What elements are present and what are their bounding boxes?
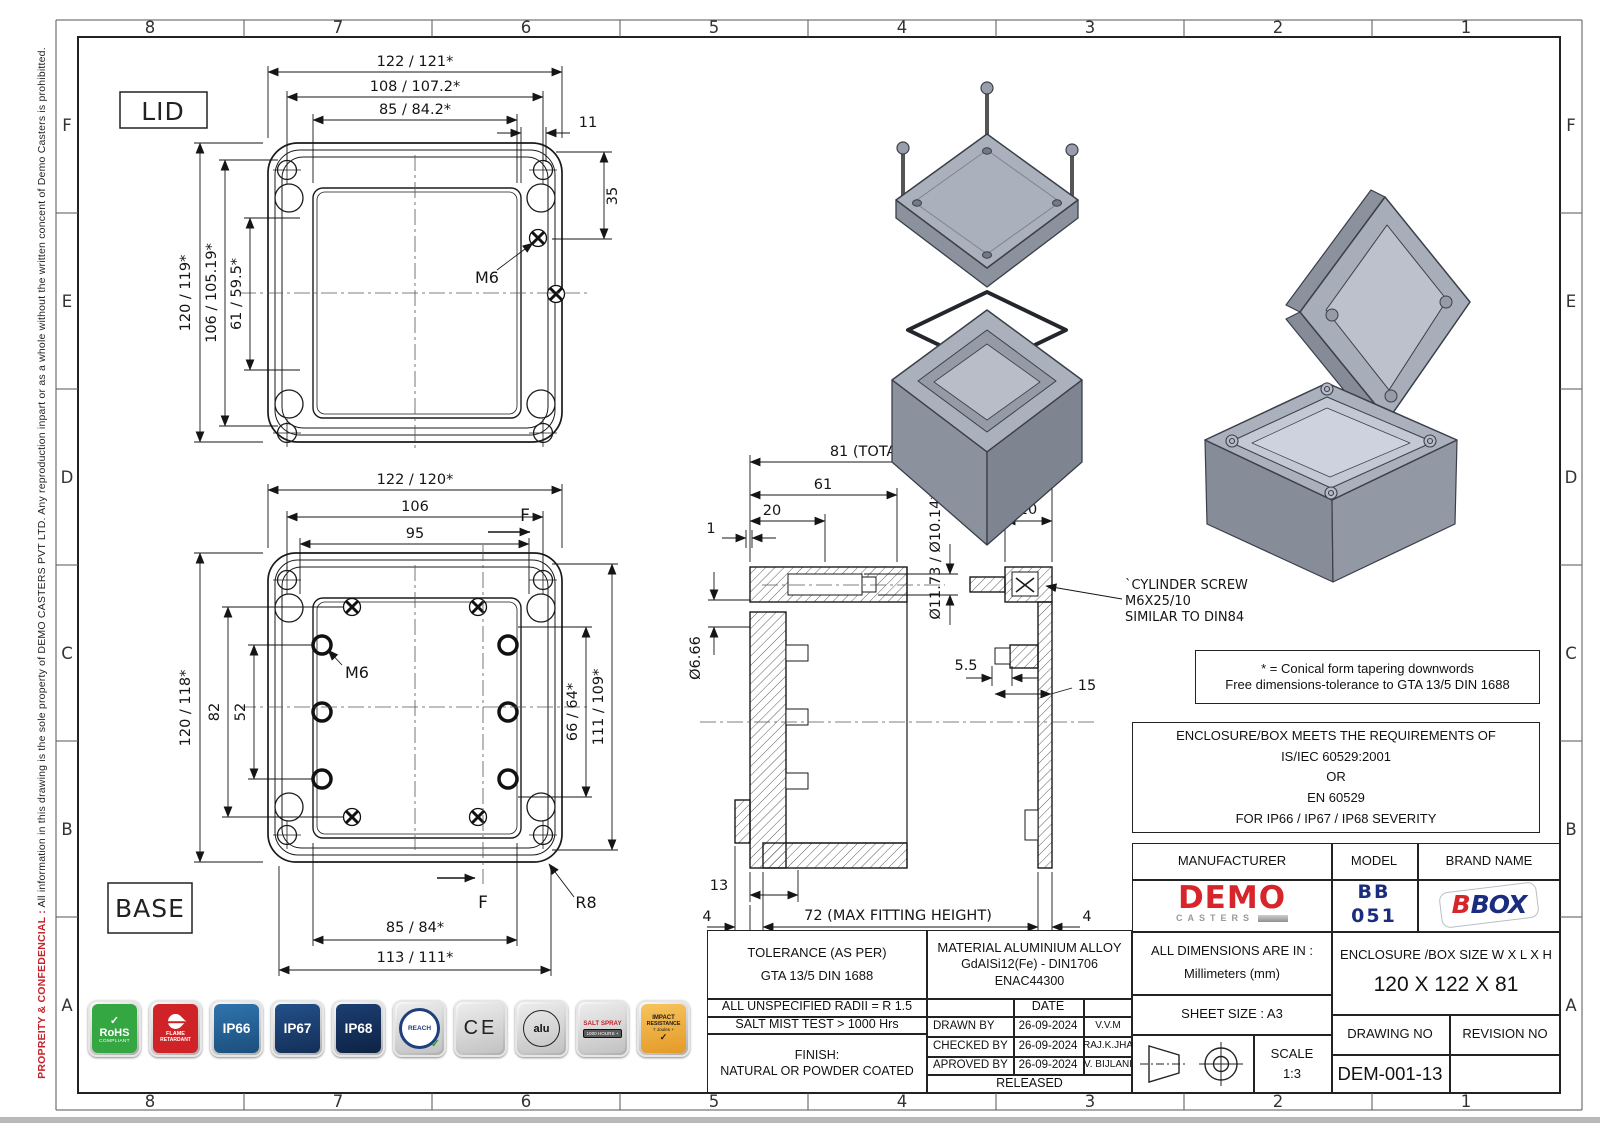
requirements-box: ENCLOSURE/BOX MEETS THE REQUIREMENTS OF …: [1132, 722, 1540, 833]
drawing-sheet: 87654321 87654321 FEDCBA FEDCBA LID: [0, 0, 1600, 1131]
svg-text:2: 2: [1273, 1092, 1284, 1111]
confidentiality-notice-body: All information in this drawing is the s…: [36, 47, 48, 910]
alu-recycle-icon: alu: [523, 1010, 560, 1047]
rohs-label: RoHS: [100, 1027, 130, 1039]
req-line4: EN 60529: [1307, 790, 1365, 806]
checked-by-label: CHECKED BY: [926, 1036, 1013, 1056]
manufacturer-logo: DEMO CASTERS: [1133, 879, 1331, 931]
req-line5: FOR IP66 / IP67 / IP68 SEVERITY: [1236, 811, 1437, 827]
svg-text:A: A: [1565, 996, 1577, 1015]
svg-text:A: A: [61, 996, 73, 1015]
cylinder-screw-note-1: `CYLINDER SCREW: [1125, 578, 1248, 593]
dim-4-right: 4: [1082, 909, 1091, 925]
salt-spray-hours: 1000 HOURS +: [583, 1029, 621, 1038]
base-dim-width-outer: 122 / 120*: [377, 472, 454, 488]
svg-text:C: C: [1565, 644, 1577, 663]
finish-value: NATURAL OR POWDER COATED: [720, 1064, 914, 1080]
drawn-by-name: V.V.M: [1083, 1016, 1133, 1036]
svg-text:5: 5: [709, 18, 720, 37]
lid-dim-width-mid: 108 / 107.2*: [370, 79, 461, 95]
scale-value: 1:3: [1283, 1066, 1301, 1082]
checked-by-date: 26-09-2024: [1013, 1036, 1083, 1056]
svg-text:5: 5: [709, 1092, 720, 1111]
dim-20-left: 20: [763, 503, 781, 519]
base-label: BASE: [115, 894, 185, 923]
ce-label: CE: [464, 1017, 498, 1040]
svg-text:B: B: [61, 820, 72, 839]
bbox-logo-outline: [1438, 881, 1540, 929]
enclosure-size-header: ENCLOSURE /BOX SIZE W X L X H: [1340, 947, 1552, 963]
base-dim-width-mid: 106: [401, 499, 429, 515]
ip67-label: IP67: [284, 1021, 312, 1036]
lid-phillips-screws: [530, 230, 565, 303]
base-dim-height-mid: 82: [207, 703, 223, 721]
base-centerlines: [240, 545, 590, 884]
base-view: BASE: [108, 472, 618, 976]
svg-text:B: B: [1565, 820, 1576, 839]
released-label: RELEASED: [926, 1074, 1133, 1094]
base-dim-width-inner: 95: [406, 526, 424, 542]
base-screw-label: M6: [345, 663, 369, 682]
tolerance-header: TOLERANCE (AS PER): [747, 945, 886, 961]
lid-dim-height-outer: 120 / 119*: [178, 255, 194, 332]
base-dim-right-outer: 111 / 109*: [591, 669, 607, 746]
page-edge-shadow: [0, 1117, 1600, 1123]
approved-by-name: V. BIJLANI: [1083, 1056, 1133, 1074]
revision-no-value: [1449, 1054, 1561, 1094]
dim-61: 61: [814, 477, 832, 493]
svg-text:2: 2: [1273, 18, 1284, 37]
svg-text:E: E: [1566, 292, 1576, 311]
base-dim-right-inner: 66 / 64*: [565, 683, 581, 741]
scale-label: SCALE: [1271, 1046, 1314, 1062]
salt-spray-badge: SALT SPRAY 1000 HOURS +: [576, 1000, 629, 1057]
salt-spray-label: SALT SPRAY: [583, 1020, 621, 1027]
dimensions-units-header: ALL DIMENSIONS ARE IN :: [1151, 943, 1313, 959]
svg-text:7: 7: [333, 1092, 344, 1111]
alu-label: alu: [534, 1023, 550, 1035]
drawing-no-value: DEM-001-13: [1331, 1054, 1449, 1094]
reach-ring-icon: REACH ✓: [399, 1008, 440, 1049]
svg-text:C: C: [61, 644, 73, 663]
dim-13: 13: [710, 878, 728, 894]
dim-15: 15: [1078, 678, 1096, 694]
section-label-top: F: [520, 506, 530, 526]
lid-dim-corner-v: 35: [605, 187, 621, 205]
approved-by-label: APROVED BY: [926, 1056, 1013, 1074]
dim-5-5: 5.5: [954, 658, 977, 674]
lid-dim-height-mid: 106 / 105.19*: [204, 243, 220, 343]
dim-4-left: 4: [702, 909, 711, 925]
svg-text:F: F: [1566, 116, 1576, 135]
projection-symbol: [1133, 1034, 1253, 1094]
sheet-size: SHEET SIZE : A3: [1133, 994, 1331, 1034]
material-line2: GdAISi12(Fe) - DIN1706: [961, 957, 1098, 973]
svg-text:D: D: [1565, 468, 1578, 487]
approved-by-date: 26-09-2024: [1013, 1056, 1083, 1074]
svg-text:6: 6: [521, 18, 532, 37]
tolerance-value: GTA 13/5 DIN 1688: [761, 968, 874, 984]
certification-badges: ✓ RoHS COMPLIANT FLAME RETARDANT IP66 IP…: [88, 1000, 690, 1057]
lid-screw-label: M6: [475, 268, 499, 287]
dim-dia-screw: Ø11.73 / Ø10.14*: [928, 492, 944, 619]
svg-text:4: 4: [897, 18, 908, 37]
flame-icon: [165, 1011, 186, 1032]
dimensions-units-value: Millimeters (mm): [1184, 966, 1280, 982]
date-header: DATE: [1013, 998, 1083, 1016]
svg-text:3: 3: [1085, 18, 1096, 37]
req-line1: ENCLOSURE/BOX MEETS THE REQUIREMENTS OF: [1176, 728, 1496, 744]
svg-text:8: 8: [145, 18, 156, 37]
flame-retardant-badge: FLAME RETARDANT: [149, 1000, 202, 1057]
base-radius-label: R8: [575, 893, 596, 912]
alu-badge: alu: [515, 1000, 568, 1057]
dim-max-fitting: 72 (MAX FITTING HEIGHT): [804, 908, 992, 924]
demo-logo-sub: CASTERS: [1176, 913, 1254, 924]
drawn-by-date: 26-09-2024: [1013, 1016, 1083, 1036]
rohs-check-icon: ✓: [110, 1014, 119, 1027]
conical-note-line1: * = Conical form tapering downwords: [1261, 661, 1474, 677]
iso-open-view: [1205, 190, 1470, 582]
ip68-label: IP68: [345, 1021, 373, 1036]
cylinder-screw-note-2: M6X25/10: [1125, 594, 1191, 609]
manufacturer-header: MANUFACTURER: [1133, 844, 1331, 879]
reach-check-icon: ✓: [431, 1037, 440, 1050]
base-dim-height-outer: 120 / 118*: [178, 670, 194, 747]
ip68-badge: IP68: [332, 1000, 385, 1057]
svg-text:D: D: [61, 468, 74, 487]
ip66-badge: IP66: [210, 1000, 263, 1057]
reach-label: REACH: [408, 1025, 431, 1032]
conical-note-box: * = Conical form tapering downwords Free…: [1195, 650, 1540, 704]
svg-text:6: 6: [521, 1092, 532, 1111]
ip67-badge: IP67: [271, 1000, 324, 1057]
rohs-badge: ✓ RoHS COMPLIANT: [88, 1000, 141, 1057]
finish-label: FINISH:: [795, 1048, 839, 1064]
lid-label: LID: [141, 97, 185, 126]
ip66-label: IP66: [223, 1021, 251, 1036]
checked-by-name: RAJ.K.JHA: [1083, 1036, 1133, 1056]
model-value: BB 051: [1331, 881, 1417, 929]
reach-badge: REACH ✓: [393, 1000, 446, 1057]
material-line3: ENAC44300: [995, 974, 1065, 990]
dim-1: 1: [706, 521, 715, 537]
drawing-no-header: DRAWING NO: [1331, 1014, 1449, 1054]
req-line2: IS/IEC 60529:2001: [1281, 749, 1391, 765]
svg-text:4: 4: [897, 1092, 908, 1111]
svg-text:E: E: [62, 292, 72, 311]
brand-header: BRAND NAME: [1417, 844, 1561, 879]
model-header: MODEL: [1331, 844, 1417, 879]
title-block: MANUFACTURER MODEL BRAND NAME DEMO CASTE…: [1132, 843, 1560, 1093]
base-dim-height-inner: 52: [233, 703, 249, 721]
confidentiality-notice: PROPREITY & CONFEDENCIAL : All informati…: [36, 35, 48, 1091]
base-dim-bottom-outer: 113 / 111*: [377, 950, 454, 966]
conical-note-line2: Free dimensions-tolerance to GTA 13/5 DI…: [1225, 677, 1509, 693]
rohs-sub: COMPLIANT: [99, 1039, 130, 1044]
dim-dia-hole: Ø6.66: [688, 636, 704, 680]
svg-text:3: 3: [1085, 1092, 1096, 1111]
confidentiality-notice-red: PROPREITY & CONFEDENCIAL :: [36, 910, 48, 1079]
material-line1: MATERIAL ALUMINIUM ALLOY: [937, 940, 1121, 956]
salt-mist-note: SALT MIST TEST > 1000 Hrs: [708, 1016, 926, 1033]
tolerance-table: TOLERANCE (AS PER) GTA 13/5 DIN 1688 ALL…: [707, 930, 1132, 1093]
svg-text:F: F: [62, 116, 72, 135]
svg-text:7: 7: [333, 18, 344, 37]
lid-view: LID: [120, 54, 621, 448]
lid-dim-corner: 11: [579, 115, 597, 131]
section-label-bottom: F: [478, 893, 488, 913]
lid-centerlines: [240, 155, 590, 448]
flame-label2: RETARDANT: [160, 1037, 191, 1043]
req-line3: OR: [1326, 769, 1346, 785]
svg-text:1: 1: [1461, 1092, 1472, 1111]
lid-dim-width-outer: 122 / 121*: [377, 54, 454, 70]
demo-logo-text: DEMO: [1178, 885, 1286, 913]
impact-resistance-badge: IMPACT RESISTANCE 7 Joules + ✓: [637, 1000, 690, 1057]
svg-text:8: 8: [145, 1092, 156, 1111]
drawn-by-label: DRAWN BY: [926, 1016, 1013, 1036]
base-dim-bottom-inner: 85 / 84*: [386, 920, 444, 936]
enclosure-size-value: 120 X 122 X 81: [1374, 972, 1519, 998]
svg-text:1: 1: [1461, 18, 1472, 37]
impact-check-icon: ✓: [660, 1032, 668, 1043]
radii-note: ALL UNSPECIFIED RADII = R 1.5: [708, 998, 926, 1016]
lid-dim-height-inner: 61 / 59.5*: [229, 258, 245, 330]
cylinder-screw-note-3: SIMILAR TO DIN84: [1125, 610, 1244, 625]
brand-logo: BBOX: [1417, 879, 1561, 931]
revision-no-header: REVISION NO: [1449, 1014, 1561, 1054]
lid-dim-width-inner: 85 / 84.2*: [379, 102, 451, 118]
ce-badge: CE: [454, 1000, 507, 1057]
demo-logo-bar: [1258, 915, 1288, 922]
iso-exploded-view: [892, 82, 1082, 545]
third-angle-projection-icon: [1135, 1038, 1251, 1090]
